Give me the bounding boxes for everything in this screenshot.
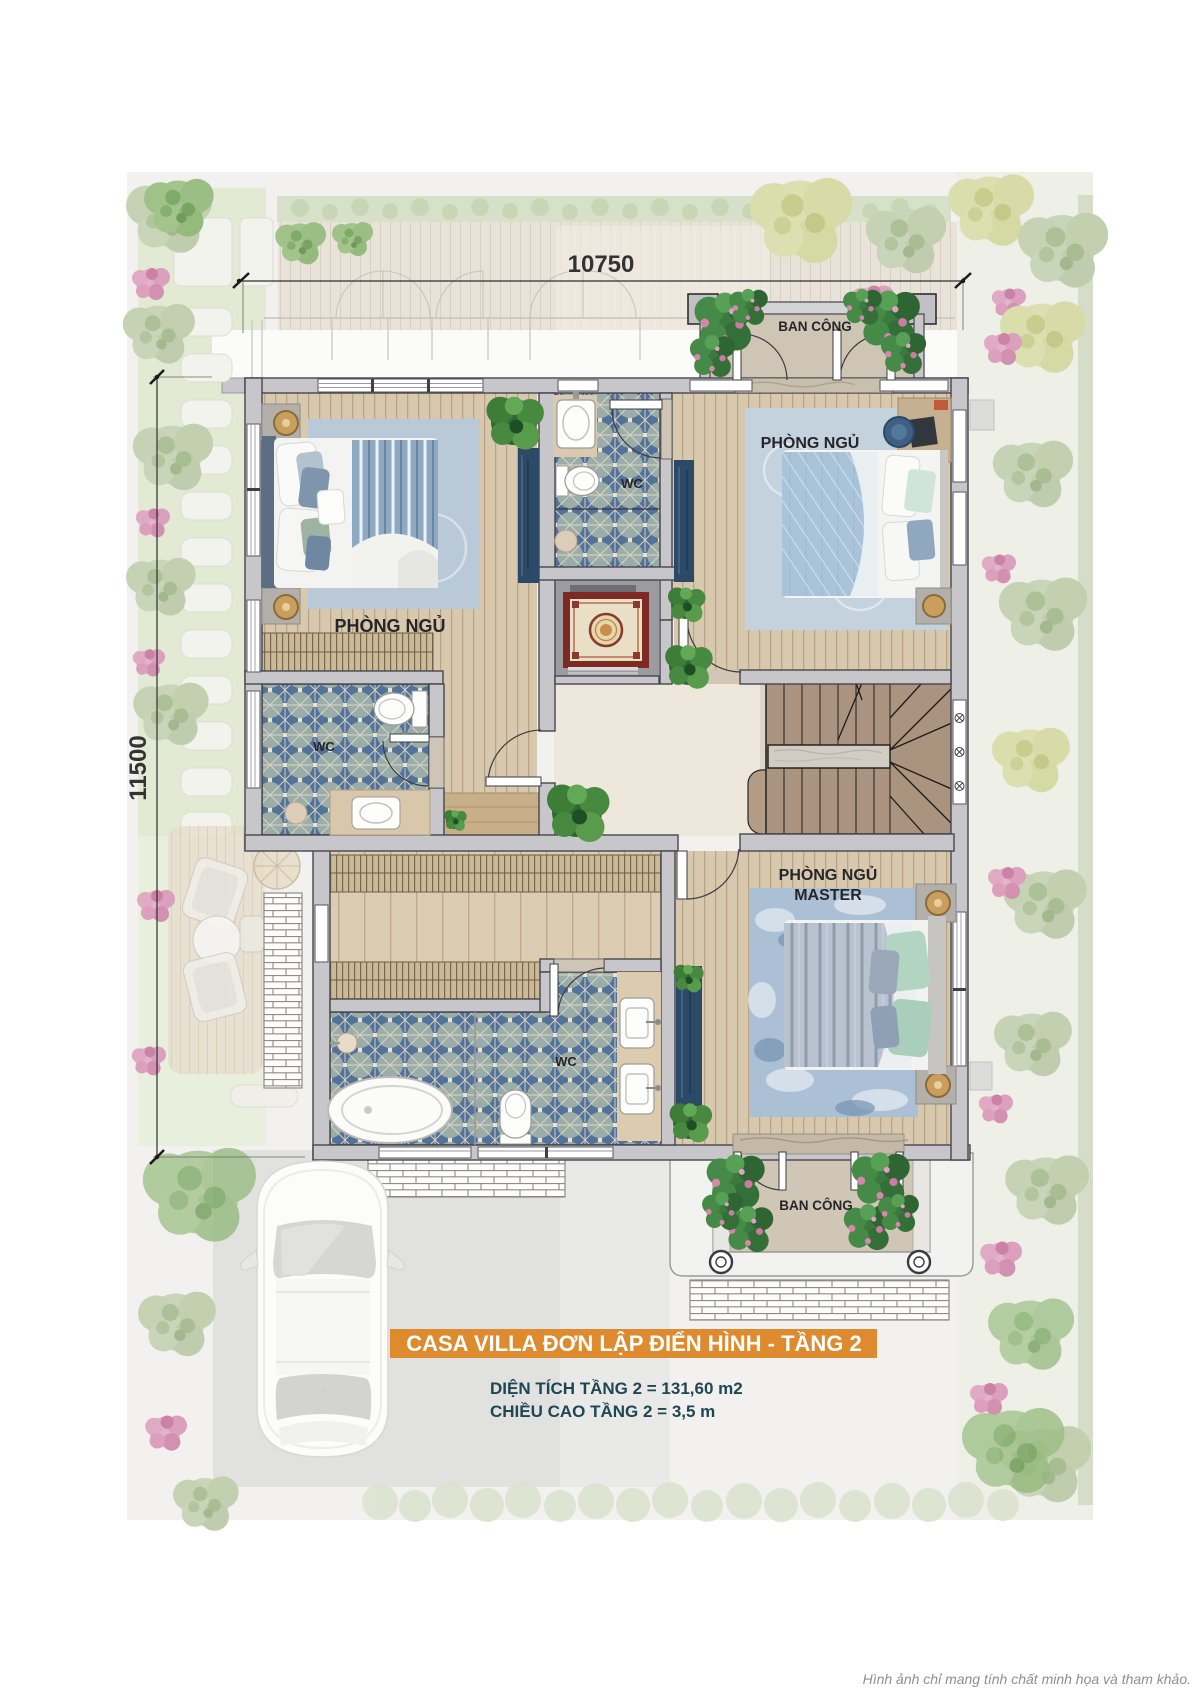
svg-text:PHÒNG NGỦ: PHÒNG NGỦ bbox=[334, 615, 445, 636]
svg-text:BAN CÔNG: BAN CÔNG bbox=[779, 1198, 853, 1213]
svg-text:CHIỀU CAO TẦNG 2 = 3,5 m: CHIỀU CAO TẦNG 2 = 3,5 m bbox=[490, 1402, 715, 1421]
svg-text:Hình ảnh chỉ mang tính chất mi: Hình ảnh chỉ mang tính chất minh họa và … bbox=[863, 1671, 1191, 1687]
svg-text:WC: WC bbox=[555, 1054, 577, 1069]
svg-text:CASA VILLA ĐƠN LẬP ĐIỂN HÌNH: CASA VILLA ĐƠN LẬP ĐIỂN HÌNH - TẦNG 2 bbox=[406, 1331, 862, 1356]
svg-text:PHÒNG NGỦ: PHÒNG NGỦ bbox=[779, 865, 878, 884]
svg-text:MASTER: MASTER bbox=[794, 887, 862, 904]
svg-text:WC: WC bbox=[313, 739, 335, 754]
svg-text:WC: WC bbox=[621, 476, 643, 491]
svg-text:10750: 10750 bbox=[568, 251, 635, 278]
svg-text:BAN CÔNG: BAN CÔNG bbox=[778, 319, 852, 334]
svg-text:11500: 11500 bbox=[125, 735, 152, 800]
svg-text:DIỆN TÍCH TẦNG 2 = 131,60 m2: DIỆN TÍCH TẦNG 2 = 131,60 m2 bbox=[490, 1379, 743, 1398]
svg-text:PHÒNG NGỦ: PHÒNG NGỦ bbox=[761, 433, 860, 452]
